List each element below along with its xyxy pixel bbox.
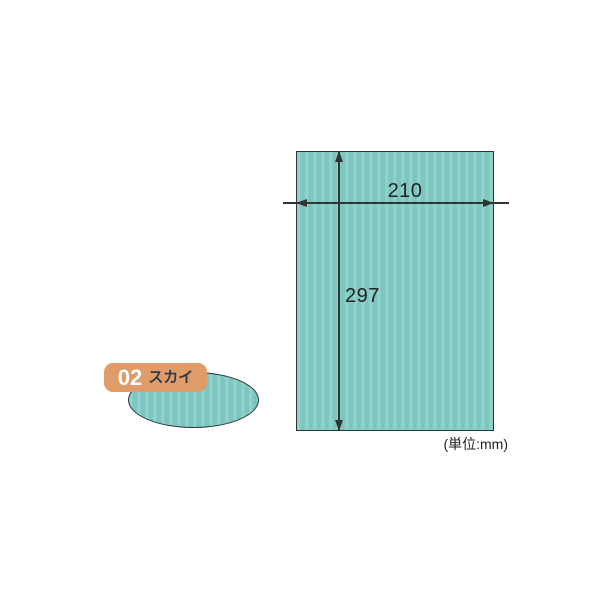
arrow-down-icon	[335, 420, 343, 431]
width-dimension-label: 210	[306, 181, 504, 201]
width-dimension-line	[283, 202, 509, 204]
color-code-label: 02 スカイ	[104, 363, 207, 392]
product-image: 210 297 (単位:mm) 02 スカイ	[0, 0, 600, 600]
color-number: 02	[118, 367, 142, 389]
unit-label: (単位:mm)	[443, 436, 508, 452]
height-dimension-line	[338, 151, 340, 431]
color-name: スカイ	[148, 370, 193, 385]
arrow-up-icon	[335, 151, 343, 162]
height-dimension-label: 297	[345, 286, 380, 306]
